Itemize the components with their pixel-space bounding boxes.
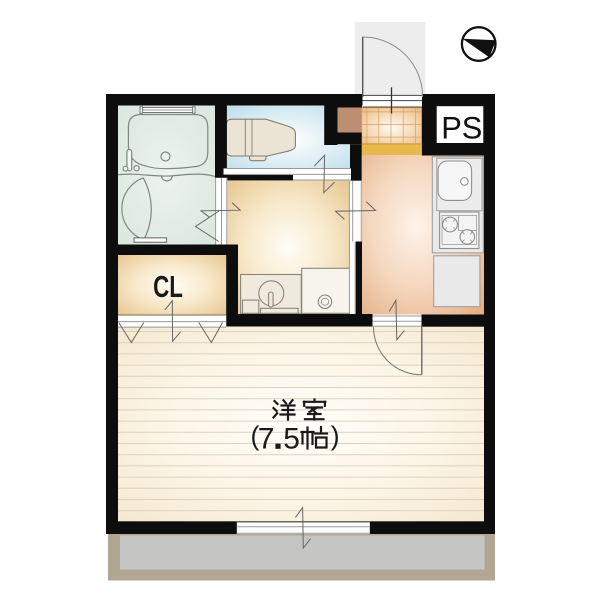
svg-text:PS: PS	[441, 110, 482, 145]
svg-text:): )	[331, 421, 340, 451]
svg-text:CL: CL	[153, 269, 183, 303]
svg-text:7: 7	[258, 423, 275, 456]
svg-text:5: 5	[283, 423, 300, 456]
